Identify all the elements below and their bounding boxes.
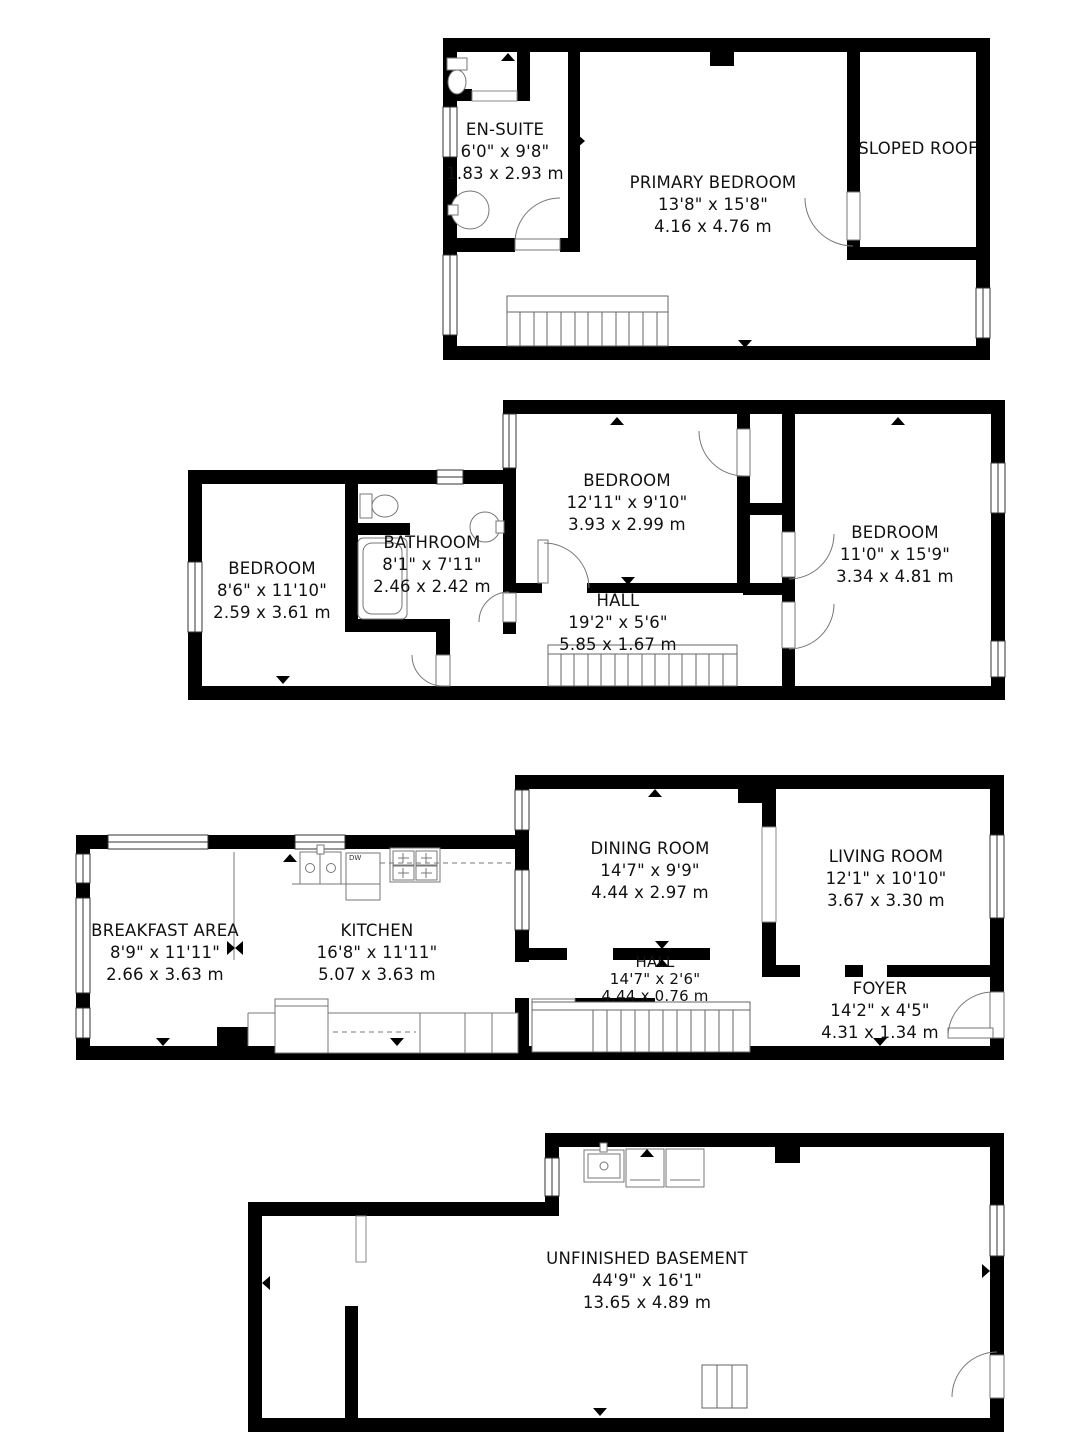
door-leaf: [538, 540, 548, 583]
door-leaf: [990, 1355, 1004, 1398]
room-name: FOYER: [821, 978, 939, 1000]
room-dims-metric: 1.83 x 2.93 m: [446, 163, 564, 185]
room-name: EN-SUITE: [446, 119, 564, 141]
room-name: UNFINISHED BASEMENT: [546, 1248, 748, 1270]
thin-partition: [356, 1216, 366, 1262]
room-label-primary-bedroom: PRIMARY BEDROOM 13'8" x 15'8" 4.16 x 4.7…: [630, 172, 797, 238]
room-dims-imperial: 14'7" x 2'6": [601, 971, 708, 988]
room-dims-metric: 4.44 x 0.76 m: [601, 988, 708, 1005]
door-leaf: [503, 593, 516, 622]
room-name: BEDROOM: [567, 470, 688, 492]
room-dims-imperial: 14'7" x 9'9": [590, 860, 709, 882]
room-dims-metric: 3.67 x 3.30 m: [826, 890, 947, 912]
room-dims-imperial: 8'9" x 11'11": [91, 942, 239, 964]
room-dims-metric: 4.16 x 4.76 m: [630, 216, 797, 238]
door-arc: [805, 198, 853, 246]
room-dims-imperial: 14'2" x 4'5": [821, 1000, 939, 1022]
island-counter: [275, 999, 328, 1053]
faucet-icon: [600, 1143, 607, 1152]
room-dims-metric: 2.59 x 3.61 m: [213, 602, 331, 624]
front-door-leaf: [948, 1028, 993, 1038]
room-label-hall-second: HALL 19'2" x 5'6" 5.85 x 1.67 m: [559, 590, 677, 656]
room-dims-imperial: 44'9" x 16'1": [546, 1270, 748, 1292]
chimney: [738, 789, 762, 803]
room-label-unfinished-basement: UNFINISHED BASEMENT 44'9" x 16'1" 13.65 …: [546, 1248, 748, 1314]
room-label-sloped-roof: SLOPED ROOF: [858, 138, 978, 160]
room-dims-metric: 4.31 x 1.34 m: [821, 1022, 939, 1044]
toilet-icon: [447, 58, 467, 70]
room-label-bathroom: BATHROOM 8'1" x 7'11" 2.46 x 2.42 m: [373, 532, 491, 598]
room-name: BREAKFAST AREA: [91, 920, 239, 942]
faucet-icon: [317, 845, 324, 854]
room-label-bedroom-middle: BEDROOM 12'11" x 9'10" 3.93 x 2.99 m: [567, 470, 688, 536]
room-label-foyer: FOYER 14'2" x 4'5" 4.31 x 1.34 m: [821, 978, 939, 1044]
room-dims-metric: 13.65 x 4.89 m: [546, 1292, 748, 1314]
room-name: BATHROOM: [373, 532, 491, 554]
door-leaf: [436, 655, 450, 686]
room-label-dining-room: DINING ROOM 14'7" x 9'9" 4.44 x 2.97 m: [590, 838, 709, 904]
room-dims-imperial: 13'8" x 15'8": [630, 194, 797, 216]
room-dims-metric: 4.44 x 2.97 m: [590, 882, 709, 904]
toilet-icon: [360, 494, 372, 518]
dryer-icon: [666, 1149, 704, 1187]
stairs: [532, 1002, 750, 1052]
partition-wall: [345, 1306, 358, 1418]
room-dims-imperial: 12'1" x 10'10": [826, 868, 947, 890]
room-label-hall-main: HALL 14'7" x 2'6" 4.44 x 0.76 m: [601, 954, 708, 1005]
stairs: [507, 296, 668, 346]
floorplan-page: EN-SUITE 6'0" x 9'8" 1.83 x 2.93 m PRIMA…: [0, 0, 1080, 1440]
toilet-icon: [448, 70, 466, 94]
room-name: KITCHEN: [317, 920, 438, 942]
room-label-bedroom-right: BEDROOM 11'0" x 15'9" 3.34 x 4.81 m: [836, 522, 954, 588]
door-leaf: [782, 602, 795, 648]
room-dims-metric: 3.93 x 2.99 m: [567, 514, 688, 536]
room-dims-imperial: 16'8" x 11'11": [317, 942, 438, 964]
door-leaf: [847, 192, 860, 240]
door-leaf: [515, 239, 560, 250]
cased-opening: [472, 91, 517, 101]
room-dims-imperial: 8'6" x 11'10": [213, 580, 331, 602]
room-name: DINING ROOM: [590, 838, 709, 860]
room-dims-metric: 5.07 x 3.63 m: [317, 964, 438, 986]
room-dims-metric: 5.85 x 1.67 m: [559, 634, 677, 656]
room-name: LIVING ROOM: [826, 846, 947, 868]
room-dims-imperial: 6'0" x 9'8": [446, 141, 564, 163]
faucet-icon: [448, 205, 458, 215]
room-label-en-suite: EN-SUITE 6'0" x 9'8" 1.83 x 2.93 m: [446, 119, 564, 185]
room-dims-imperial: 12'11" x 9'10": [567, 492, 688, 514]
cased-opening: [762, 827, 776, 922]
room-dims-imperial: 8'1" x 7'11": [373, 554, 491, 576]
chimney: [217, 1027, 248, 1046]
door-arc: [544, 543, 589, 588]
chimney: [710, 52, 734, 66]
toilet-icon: [372, 495, 398, 517]
room-name: BEDROOM: [836, 522, 954, 544]
room-name: SLOPED ROOF: [858, 138, 978, 160]
door-arc: [789, 534, 834, 579]
room-label-living-room: LIVING ROOM 12'1" x 10'10" 3.67 x 3.30 m: [826, 846, 947, 912]
doors: [952, 1352, 1004, 1398]
door-leaf: [782, 532, 795, 577]
faucet-icon: [496, 521, 504, 533]
room-name: PRIMARY BEDROOM: [630, 172, 797, 194]
counter: [328, 1013, 518, 1053]
room-dims-imperial: 11'0" x 15'9": [836, 544, 954, 566]
room-dims-metric: 2.66 x 3.63 m: [91, 964, 239, 986]
room-name: BEDROOM: [213, 558, 331, 580]
room-name: HALL: [559, 590, 677, 612]
door-leaf: [737, 429, 750, 476]
room-label-breakfast-area: BREAKFAST AREA 8'9" x 11'11" 2.66 x 3.63…: [91, 920, 239, 986]
floorplan-drawing: [0, 0, 1080, 1440]
room-dims-metric: 3.34 x 4.81 m: [836, 566, 954, 588]
room-name: HALL: [601, 954, 708, 971]
fixtures: [584, 1143, 704, 1187]
door-arc: [789, 604, 834, 649]
room-dims-metric: 2.46 x 2.42 m: [373, 576, 491, 598]
stairs: [702, 1365, 747, 1408]
room-label-bedroom-left: BEDROOM 8'6" x 11'10" 2.59 x 3.61 m: [213, 558, 331, 624]
door-arc: [515, 198, 560, 243]
dishwasher-label: DW: [349, 854, 361, 862]
chimney: [775, 1147, 800, 1163]
room-label-kitchen: KITCHEN 16'8" x 11'11" 5.07 x 3.63 m: [317, 920, 438, 986]
room-dims-imperial: 19'2" x 5'6": [559, 612, 677, 634]
